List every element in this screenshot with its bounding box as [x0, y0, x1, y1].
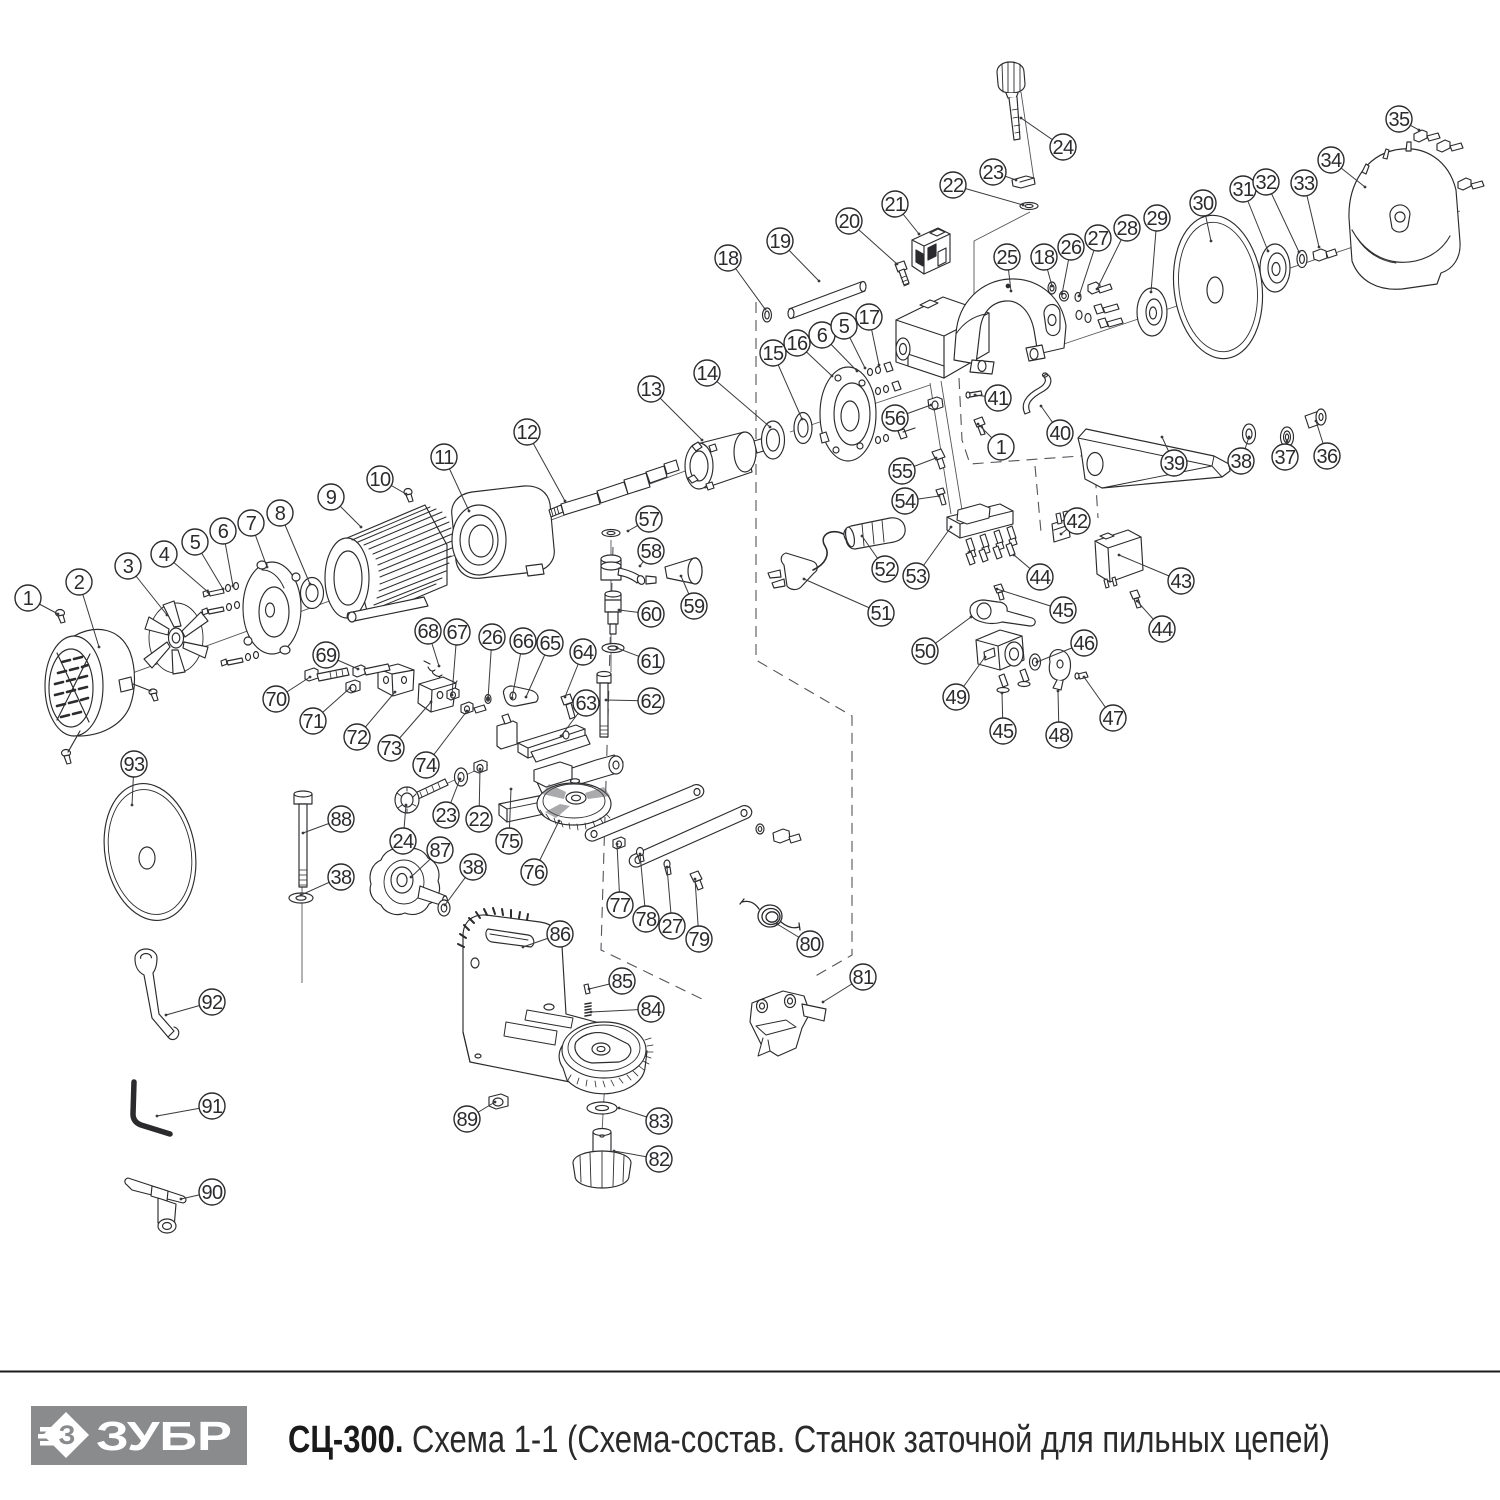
svg-text:86: 86: [549, 924, 571, 946]
svg-text:29: 29: [1146, 208, 1168, 230]
svg-text:70: 70: [265, 689, 287, 711]
svg-text:23: 23: [982, 162, 1004, 184]
svg-text:87: 87: [429, 840, 451, 862]
svg-text:81: 81: [852, 967, 874, 989]
svg-text:43: 43: [1170, 571, 1192, 593]
svg-text:77: 77: [609, 895, 631, 917]
svg-text:55: 55: [891, 461, 913, 483]
svg-text:9: 9: [326, 487, 337, 509]
svg-text:59: 59: [683, 596, 705, 618]
svg-text:7: 7: [246, 513, 257, 535]
svg-text:49: 49: [945, 687, 967, 709]
svg-text:60: 60: [640, 604, 662, 626]
svg-text:16: 16: [786, 333, 808, 355]
svg-text:66: 66: [512, 631, 534, 653]
svg-text:41: 41: [987, 388, 1009, 410]
svg-text:22: 22: [468, 809, 490, 831]
svg-text:73: 73: [380, 738, 402, 760]
svg-text:75: 75: [498, 831, 520, 853]
svg-text:6: 6: [817, 325, 828, 347]
svg-text:20: 20: [838, 211, 860, 233]
svg-text:78: 78: [635, 909, 657, 931]
svg-text:5: 5: [839, 316, 850, 338]
svg-text:21: 21: [884, 194, 906, 216]
svg-text:27: 27: [661, 916, 683, 938]
svg-text:47: 47: [1102, 708, 1124, 730]
svg-text:35: 35: [1388, 109, 1410, 131]
svg-text:45: 45: [1052, 600, 1074, 622]
svg-text:31: 31: [1232, 179, 1254, 201]
svg-text:82: 82: [648, 1149, 670, 1171]
svg-text:69: 69: [315, 645, 337, 667]
svg-text:80: 80: [799, 934, 821, 956]
svg-text:18: 18: [1033, 247, 1055, 269]
svg-text:25: 25: [996, 247, 1018, 269]
svg-text:84: 84: [640, 999, 662, 1021]
svg-text:28: 28: [1116, 218, 1138, 240]
svg-text:46: 46: [1073, 633, 1095, 655]
svg-text:34: 34: [1320, 150, 1342, 172]
svg-text:85: 85: [611, 971, 633, 993]
svg-text:53: 53: [905, 566, 927, 588]
svg-text:17: 17: [858, 307, 880, 329]
svg-text:67: 67: [446, 622, 468, 644]
svg-text:51: 51: [870, 603, 892, 625]
svg-text:27: 27: [1087, 228, 1109, 250]
svg-text:10: 10: [369, 469, 391, 491]
svg-text:57: 57: [638, 509, 660, 531]
svg-text:89: 89: [456, 1109, 478, 1131]
svg-text:52: 52: [874, 559, 896, 581]
svg-text:44: 44: [1151, 619, 1173, 641]
svg-text:24: 24: [1052, 137, 1074, 159]
svg-text:38: 38: [330, 867, 352, 889]
svg-text:72: 72: [346, 727, 368, 749]
svg-text:13: 13: [640, 379, 662, 401]
svg-text:6: 6: [218, 521, 229, 543]
svg-text:1: 1: [23, 588, 34, 610]
svg-text:76: 76: [523, 862, 545, 884]
svg-text:18: 18: [717, 248, 739, 270]
svg-text:12: 12: [516, 422, 538, 444]
svg-text:37: 37: [1274, 447, 1296, 469]
svg-text:24: 24: [392, 831, 414, 853]
svg-text:30: 30: [1192, 193, 1214, 215]
svg-text:91: 91: [201, 1096, 223, 1118]
svg-text:90: 90: [201, 1182, 223, 1204]
svg-text:71: 71: [302, 711, 324, 733]
svg-text:42: 42: [1066, 511, 1088, 533]
svg-text:33: 33: [1293, 173, 1315, 195]
svg-text:79: 79: [688, 929, 710, 951]
svg-text:56: 56: [884, 408, 906, 430]
svg-text:63: 63: [575, 693, 597, 715]
svg-text:50: 50: [914, 641, 936, 663]
svg-text:61: 61: [640, 651, 662, 673]
svg-text:83: 83: [648, 1111, 670, 1133]
svg-text:88: 88: [330, 809, 352, 831]
svg-text:26: 26: [481, 627, 503, 649]
svg-text:32: 32: [1255, 172, 1277, 194]
svg-text:26: 26: [1060, 237, 1082, 259]
svg-text:93: 93: [123, 754, 145, 776]
svg-text:СЦ-300. Схема 1-1 (Схема-соста: СЦ-300. Схема 1-1 (Схема-состав. Станок …: [288, 1419, 1330, 1461]
svg-text:5: 5: [190, 532, 201, 554]
svg-text:23: 23: [435, 805, 457, 827]
svg-text:64: 64: [572, 642, 594, 664]
svg-text:15: 15: [762, 343, 784, 365]
svg-text:68: 68: [417, 621, 439, 643]
svg-text:3: 3: [123, 556, 134, 578]
svg-text:11: 11: [434, 447, 454, 469]
svg-text:44: 44: [1029, 567, 1051, 589]
svg-text:38: 38: [1230, 451, 1252, 473]
svg-text:19: 19: [769, 231, 791, 253]
svg-text:45: 45: [992, 721, 1014, 743]
svg-text:36: 36: [1316, 446, 1338, 468]
svg-text:38: 38: [462, 857, 484, 879]
svg-text:8: 8: [275, 503, 286, 525]
svg-text:4: 4: [159, 544, 170, 566]
svg-text:22: 22: [942, 175, 964, 197]
svg-text:62: 62: [640, 691, 662, 713]
svg-text:ЗУБР: ЗУБР: [96, 1413, 232, 1459]
svg-text:74: 74: [415, 755, 437, 777]
svg-text:92: 92: [201, 992, 223, 1014]
svg-text:1: 1: [996, 437, 1007, 459]
svg-text:40: 40: [1049, 423, 1071, 445]
svg-text:2: 2: [74, 572, 85, 594]
svg-text:14: 14: [696, 363, 718, 385]
svg-text:54: 54: [894, 491, 916, 513]
svg-text:39: 39: [1163, 453, 1185, 475]
svg-text:58: 58: [640, 541, 662, 563]
svg-text:48: 48: [1048, 725, 1070, 747]
svg-text:65: 65: [539, 633, 561, 655]
svg-text:З: З: [59, 1420, 76, 1450]
